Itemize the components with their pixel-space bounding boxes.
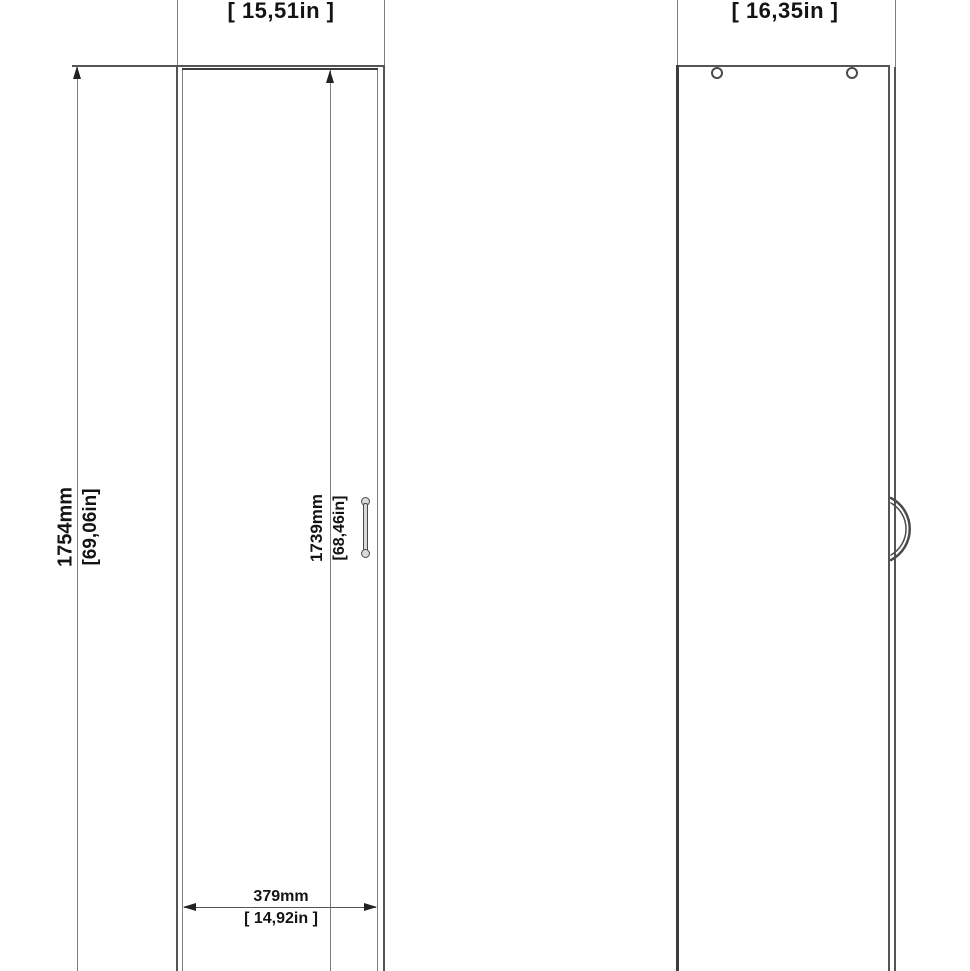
front-door-width-dim-line [184,907,376,908]
front-cabinet-left-edge [176,65,178,971]
side-ext-line-left [677,0,678,66]
front-height-dim-in: [69,06in] [80,488,102,565]
front-ext-line-left [177,0,178,66]
front-ext-line-right [384,0,385,66]
side-depth-dimension-label: [ 16,35in ] [732,0,839,24]
front-width-dimension-label: [ 15,51in ] [228,0,335,24]
technical-drawing-canvas: [ 15,51in ] 1754mm [69,06in] 1739mm [68,… [0,0,970,971]
front-door-width-arrow-left [183,903,196,911]
side-cam-hole-left [711,67,723,79]
front-handle-bottom-knob [361,549,370,558]
front-cabinet-right-edge [383,65,385,971]
front-door-width-arrow-right [364,903,377,911]
side-left-edge [676,65,679,971]
front-door-height-dim-in: [68,46in] [331,496,349,561]
front-door-width-dim-in: [ 14,92in ] [244,910,318,928]
side-top-edge [677,65,890,67]
front-door-top-edge [182,68,378,70]
front-door-width-dim-mm: 379mm [253,888,308,906]
side-ext-line-right [895,0,896,68]
front-height-dim-mm: 1754mm [55,487,78,567]
front-height-dim-arrow-up [73,66,81,79]
side-cam-hole-right [846,67,858,79]
front-door-height-dim-arrow-up [326,70,334,83]
side-handle-arc [872,492,917,567]
front-door-height-dim-mm: 1739mm [307,494,327,562]
front-handle-bar [363,503,368,552]
front-door-right-edge [377,70,378,971]
front-door-left-edge [182,70,183,971]
front-cabinet-top-edge [72,65,385,67]
